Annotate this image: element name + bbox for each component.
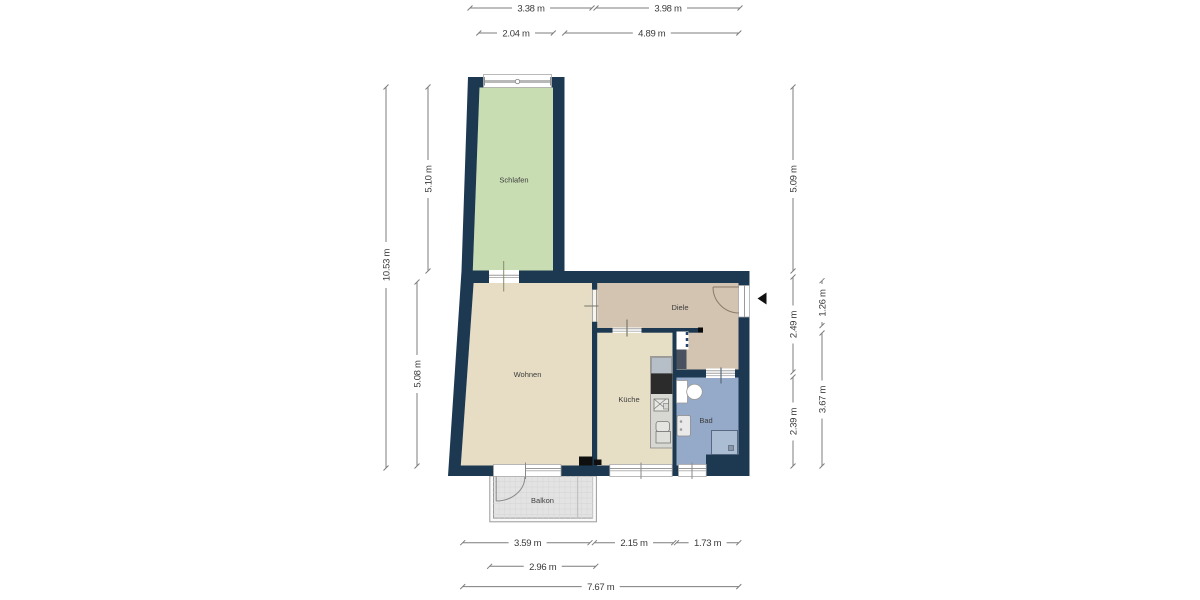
svg-text:4.89 m: 4.89 m xyxy=(638,29,666,40)
svg-text:2.96 m: 2.96 m xyxy=(529,562,557,573)
svg-text:10.53 m: 10.53 m xyxy=(382,249,393,282)
svg-text:Schlafen: Schlafen xyxy=(499,176,528,185)
svg-text:Balkon: Balkon xyxy=(531,496,554,505)
svg-text:3.59 m: 3.59 m xyxy=(514,538,542,549)
svg-text:3.98 m: 3.98 m xyxy=(654,4,682,15)
svg-text:Küche: Küche xyxy=(618,395,639,404)
svg-text:2.49 m: 2.49 m xyxy=(789,310,800,338)
svg-text:3.38 m: 3.38 m xyxy=(517,4,545,15)
svg-text:Bad: Bad xyxy=(699,416,712,425)
svg-text:Wohnen: Wohnen xyxy=(514,370,542,379)
svg-text:2.04 m: 2.04 m xyxy=(502,29,530,40)
svg-text:1.73 m: 1.73 m xyxy=(694,538,722,549)
svg-text:5.10 m: 5.10 m xyxy=(424,165,435,193)
svg-text:2.39 m: 2.39 m xyxy=(789,407,800,435)
svg-text:5.08 m: 5.08 m xyxy=(413,360,424,388)
svg-text:7.67 m: 7.67 m xyxy=(587,582,615,593)
svg-text:1.26 m: 1.26 m xyxy=(818,289,829,317)
svg-text:Diele: Diele xyxy=(671,303,688,312)
svg-text:2.15 m: 2.15 m xyxy=(620,538,648,549)
svg-text:3.67 m: 3.67 m xyxy=(818,385,829,413)
svg-text:5.09 m: 5.09 m xyxy=(789,165,800,193)
